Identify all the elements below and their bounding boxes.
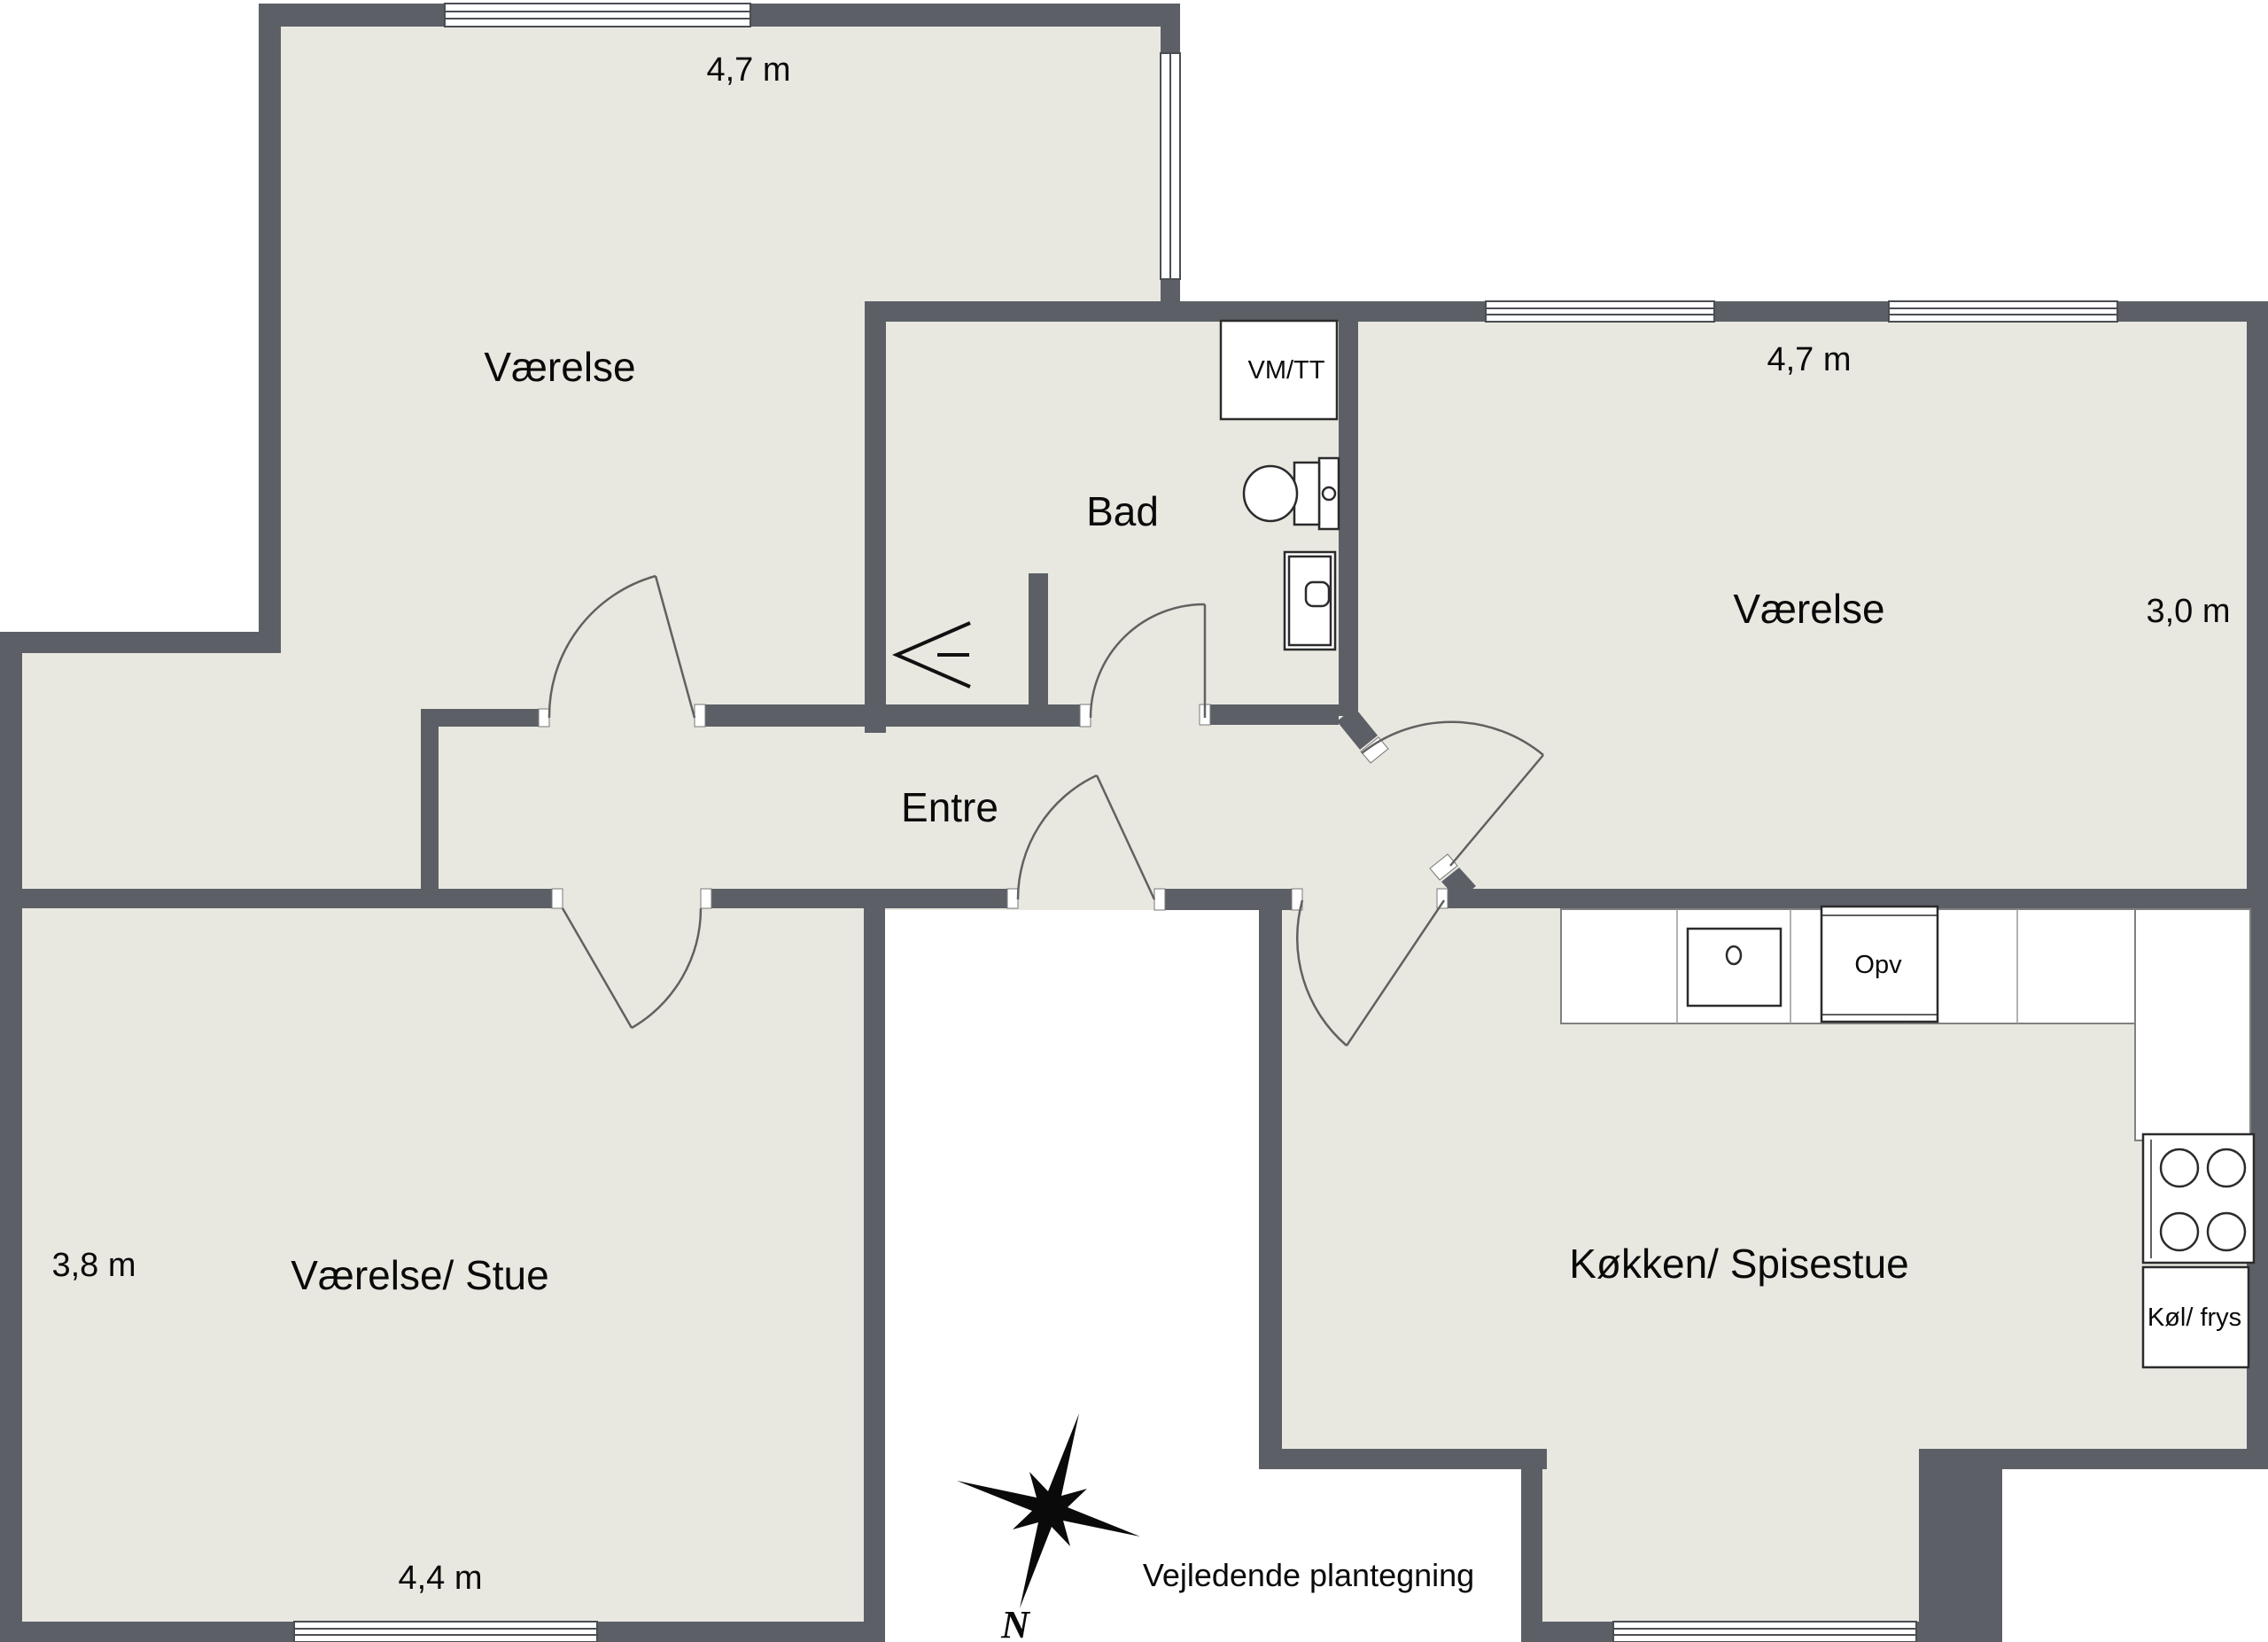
wall-entre-nub xyxy=(421,709,439,907)
wall-kitchen-bottom-right xyxy=(1984,1449,2268,1469)
wall-bath-stub xyxy=(1029,573,1048,727)
room-label-kitchen: Køkken/ Spisestue xyxy=(1569,1241,1909,1287)
dim-stue-width: 4,4 m xyxy=(398,1560,482,1597)
wall-bath-right xyxy=(1339,322,1358,716)
wall-outer-left xyxy=(0,632,22,1642)
dishwasher-box: Opv xyxy=(1821,907,1938,1022)
room-label-bath: Bad xyxy=(1086,488,1159,534)
window-nw-top xyxy=(445,4,750,27)
fridge-freezer-box: Køl/ frys xyxy=(2143,1267,2249,1367)
wall-kitchen-bottom-left xyxy=(1279,1449,1547,1469)
wall-bay-pillar xyxy=(1919,1449,2002,1642)
dim-ne-width: 4,7 m xyxy=(1767,341,1851,378)
compass-rose: N xyxy=(957,1413,1140,1642)
wall-entre-top-left xyxy=(421,709,549,727)
wall-step-left xyxy=(0,632,281,653)
room-label-entre: Entre xyxy=(901,784,998,830)
wall-kitchen-left xyxy=(1259,908,1282,1469)
wall-stue-top xyxy=(0,889,563,908)
washer-dryer-label: VM/TT xyxy=(1248,356,1325,385)
wall-outer-right xyxy=(2247,301,2268,1467)
fridge-freezer-label: Køl/ frys xyxy=(2148,1303,2241,1332)
apartment-floor xyxy=(0,4,2268,1642)
dim-ne-depth: 3,0 m xyxy=(2146,593,2230,630)
kitchen-counter-right xyxy=(2135,909,2250,1140)
wall-bay-left xyxy=(1521,1469,1542,1642)
compass-north-label: N xyxy=(1000,1603,1031,1642)
floor-plan-page: VM/TT O xyxy=(0,0,2268,1642)
room-label-ne: Værelse xyxy=(1733,586,1884,632)
room-label-nw: Værelse xyxy=(484,344,635,390)
window-stue-bottom xyxy=(294,1622,597,1642)
window-nw-right xyxy=(1161,53,1180,279)
wall-bath-left xyxy=(865,322,886,733)
window-bay-bottom xyxy=(1613,1622,1916,1642)
dim-nw-width: 4,7 m xyxy=(706,51,790,89)
bath-sink-icon xyxy=(1285,552,1335,650)
compass-star-icon xyxy=(957,1413,1140,1608)
wall-stue-right xyxy=(864,908,885,1642)
wall-stue-top-right xyxy=(701,889,1018,908)
washer-dryer-box: VM/TT xyxy=(1221,321,1337,419)
floor-plan-drawing: VM/TT O xyxy=(0,0,2268,1642)
wall-ne-bottom xyxy=(1437,889,2268,908)
window-ne-top-1 xyxy=(1486,301,1714,322)
kitchen-sink-icon xyxy=(1688,929,1781,1006)
dim-stue-depth: 3,8 m xyxy=(51,1247,136,1284)
dishwasher-label: Opv xyxy=(1854,951,1902,979)
window-ne-top-2 xyxy=(1889,301,2117,322)
wall-entre-bottom-right xyxy=(1154,889,1302,910)
plan-footer-note: Vejledende plantegning xyxy=(1143,1557,1474,1593)
stove-icon xyxy=(2143,1134,2254,1263)
room-label-stue: Værelse/ Stue xyxy=(291,1252,548,1298)
wall-bath-bottom-right xyxy=(1200,704,1339,725)
wall-left-nw xyxy=(259,4,281,653)
